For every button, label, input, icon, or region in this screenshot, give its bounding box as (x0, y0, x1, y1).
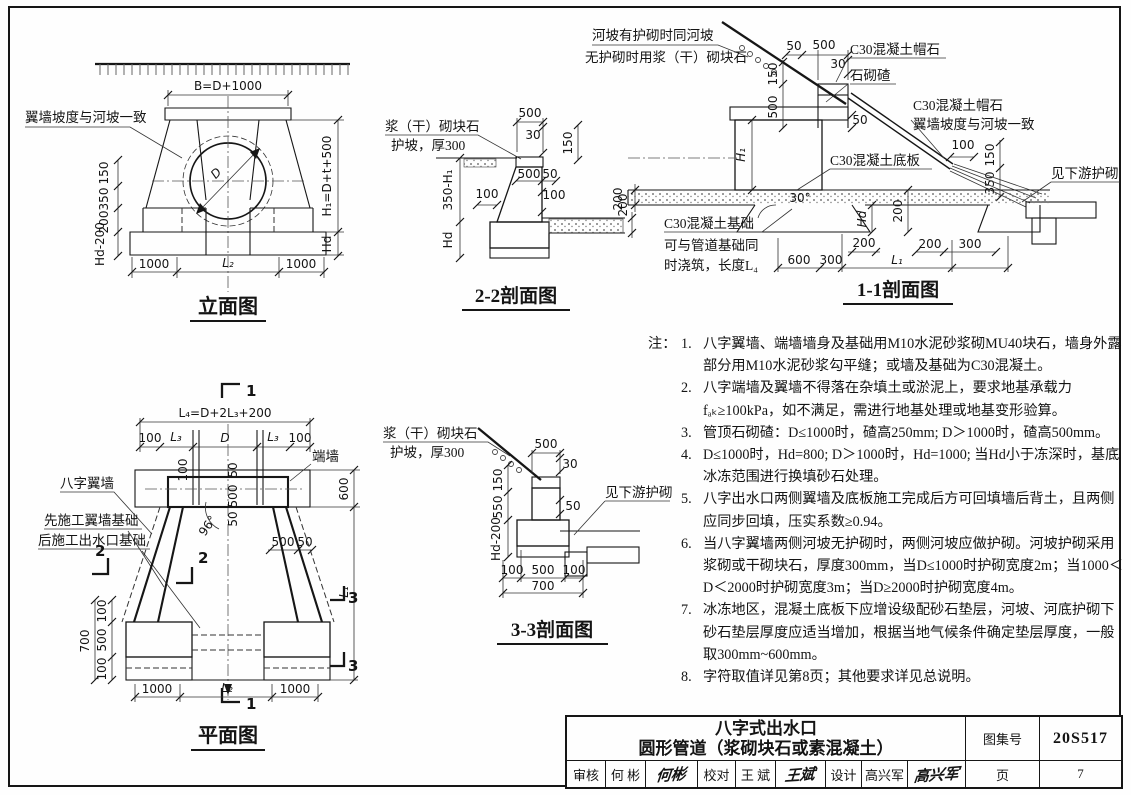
figure-elevation: B=D+1000 D 翼墙坡度与河坡一致 150 350 200 Hd-200 (25, 64, 350, 321)
section-marker-2: 2 (95, 542, 105, 560)
review-signature: 何彬 (645, 760, 697, 787)
dim-label: 30° (789, 191, 810, 205)
proof-signature: 王斌 (775, 760, 825, 787)
dim-label: 100 (289, 431, 312, 445)
atlas-number: 20S517 (1039, 717, 1121, 760)
dim-label: 500 (766, 96, 780, 119)
callout-slope-2: 无护砌时用浆（干）砌块石 (585, 50, 747, 65)
figure-section-1-1: 河坡有护砌时同河坡 无护砌时用浆（干）砌块石 50 500 30 150 500… (585, 22, 1120, 304)
dim-label: 350 (97, 188, 111, 211)
dim-label: 1000 (139, 257, 170, 271)
dim-label: D (208, 165, 224, 181)
design-label: 设计 (825, 760, 861, 787)
dim-label: 50 (297, 535, 312, 549)
dim-label: 30 (562, 457, 577, 471)
dim-label: B=D+1000 (194, 79, 262, 93)
callout-foundation-1: C30混凝土基础 (664, 215, 754, 231)
dim-label: 50 (226, 462, 240, 477)
page-number: 7 (1039, 760, 1121, 787)
note-item: 5. 八字出水口两侧翼墙及底板施工完成后方可回填墙后背土，且两侧应同步回填，压实… (648, 488, 1126, 532)
dim-label: 500 (519, 106, 542, 120)
dim-label: 150 (561, 132, 575, 155)
dim-label: L₂ (221, 681, 233, 695)
note-item: 2. 八字端墙及翼墙不得落在杂填土或淤泥上，要求地基承载力fₐₖ≥100kPa，… (648, 377, 1126, 421)
callout-riprap-2: 护坡，厚300 (390, 445, 464, 460)
callout-capstone-2: C30混凝土帽石 (913, 98, 1003, 113)
dim-label: 1000 (142, 682, 173, 696)
design-name: 高兴军 (861, 760, 907, 787)
section-marker-1: 1 (246, 382, 256, 400)
dim-label: 300 (820, 253, 843, 267)
dim-label: 500 (813, 38, 836, 52)
section-marker-1: 1 (246, 695, 256, 713)
dim-label: 150 (97, 162, 111, 185)
dim-label: 30 (525, 128, 540, 142)
callout-wing-slope: 翼墙坡度与河坡一致 (25, 110, 147, 125)
dim-label: D (220, 431, 229, 445)
callout-riprap-2: 护坡，厚300 (391, 138, 465, 153)
dim-label: 100 (563, 563, 586, 577)
dim-label: 350-H₁ (441, 169, 455, 210)
proof-name: 王 斌 (735, 760, 775, 787)
dim-label: 700 (532, 579, 555, 593)
dim-label: 100 (95, 658, 109, 681)
dim-label: 50 (542, 167, 557, 181)
dim-label: Hd (855, 210, 869, 227)
dim-label: L₁ (891, 253, 903, 267)
callout-slope-1: 河坡有护砌时同河坡 (592, 28, 714, 43)
callout-wing-slope: 翼墙坡度与河坡一致 (913, 117, 1035, 132)
dim-label: H₁=D+t+500 (320, 136, 334, 217)
dim-label: 500 (95, 629, 109, 652)
dim-label: 150 (491, 469, 505, 492)
dim-label: 30 (830, 57, 845, 71)
dim-label: 1000 (286, 257, 317, 271)
figure-title-section33: 3-3剖面图 (511, 618, 593, 641)
callout-downstream: 见下游护砌 (1051, 166, 1119, 181)
callout-endwall: 端墙 (312, 449, 339, 464)
dim-label: 100 (95, 600, 109, 623)
note-item: 8. 字符取值详见第8页；其他要求详见总说明。 (648, 666, 1126, 688)
drawing-title: 八字式出水口 圆形管道（浆砌块石或素混凝土） (567, 717, 965, 760)
figure-plan: 1 L₄=D+2L₃+200 100 L₃ D L₃ 100 100 50 50… (38, 382, 360, 750)
dim-label: Hd (441, 232, 455, 249)
callout-capstone-1: C30混凝土帽石 (850, 42, 940, 57)
dim-label: 500 (226, 485, 240, 508)
atlas-number-label: 图集号 (965, 717, 1039, 760)
callout-build-first: 先施工翼墙基础 (44, 512, 139, 528)
section-marker-3: 3 (348, 657, 358, 675)
dim-label: 100 (476, 187, 499, 201)
dim-label: 200 (611, 188, 625, 211)
dim-label: 100 (501, 563, 524, 577)
callout-foundation-2: 可与管道基础同 (664, 237, 759, 253)
note-item: 7. 冰冻地区，混凝土底板下应增设级配砂石垫层，河坡、河底护砌下砂石垫层厚度应适… (648, 599, 1126, 666)
note-item: 4. D≤1000时，Hd=800; D＞1000时，Hd=1000; 当Hd小… (648, 444, 1126, 488)
dim-label: L₄=D+2L₃+200 (179, 406, 272, 420)
dim-label: 150 (766, 63, 780, 86)
dim-label: 100 (952, 138, 975, 152)
callout-foundation-3: 时浇筑，长度L₄ (664, 258, 758, 273)
figure-title-section11: 1-1剖面图 (857, 278, 939, 301)
proof-label: 校对 (697, 760, 735, 787)
dim-label: 96° (196, 513, 220, 538)
dim-label: 600 (788, 253, 811, 267)
dim-label: 700 (78, 630, 92, 653)
note-item: 注： 1. 八字翼墙、端墙墙身及基础用M10水泥砂浆砌MU40块石，墙身外露部分… (648, 333, 1126, 377)
design-signature: 高兴军 (907, 760, 965, 787)
dim-label: 200 (853, 236, 876, 250)
figure-title-section22: 2-2剖面图 (475, 284, 557, 307)
dim-label: 500 (518, 167, 541, 181)
ground-hatch (95, 64, 350, 75)
callout-riprap: 浆（干）砌块石 (383, 426, 478, 441)
dim-label: 1000 (280, 682, 311, 696)
figure-section-3-3: 浆（干）砌块石 护坡，厚300 500 30 50 (383, 426, 673, 644)
notes-block: 注： 1. 八字翼墙、端墙墙身及基础用M10水泥砂浆砌MU40块石，墙身外露部分… (648, 333, 1126, 688)
figure-title-plan: 平面图 (198, 724, 258, 747)
page-label: 页 (965, 760, 1039, 787)
dim-label: 500 (532, 563, 555, 577)
dim-label: 550 (491, 496, 505, 519)
dim-label: 200 (891, 200, 905, 223)
dim-label: 100 (139, 431, 162, 445)
dim-label: 100 (176, 459, 190, 482)
section-marker-3: 3 (348, 589, 358, 607)
note-item: 3. 管顶石砌碴：D≤1000时，碴高250mm; D＞1000时，碴高500m… (648, 422, 1126, 444)
dim-label: 300 (959, 237, 982, 251)
review-name: 何 彬 (605, 760, 645, 787)
dim-label: Hd-200 (489, 517, 503, 561)
dim-label: L₂ (222, 256, 234, 270)
dim-label: 100 (543, 188, 566, 202)
review-label: 审核 (567, 760, 605, 787)
dim-label: 600 (337, 478, 351, 501)
title-block: 八字式出水口 圆形管道（浆砌块石或素混凝土） 图集号 20S517 审核 何 彬… (565, 715, 1123, 789)
callout-riprap: 浆（干）砌块石 (385, 119, 480, 134)
drawing-sheet: B=D+1000 D 翼墙坡度与河坡一致 150 350 200 Hd-200 (0, 0, 1131, 795)
dim-label: L₃ (267, 430, 279, 444)
dim-label: 500 (535, 437, 558, 451)
dim-label: 200 (919, 237, 942, 251)
callout-wingwall: 八字翼墙 (60, 476, 114, 491)
dim-label: Hd (320, 236, 334, 253)
notes-prefix: 注： (648, 333, 681, 377)
dim-label: L₃ (170, 430, 182, 444)
callout-stone-zha: 石砌碴 (850, 68, 891, 83)
dim-label: 50 (226, 511, 240, 526)
dim-label: 50 (786, 39, 801, 53)
dim-label: 50 (565, 499, 580, 513)
figure-title-elevation: 立面图 (198, 294, 258, 318)
dim-label: Hd-200 (93, 222, 107, 266)
dim-label: 150 (983, 144, 997, 167)
callout-slab: C30混凝土底板 (830, 153, 921, 168)
dim-label: 500 (272, 535, 295, 549)
dim-label: H₁ (734, 148, 748, 162)
note-item: 6. 当八字翼墙两侧河坡无护砌时，两侧河坡应做护砌。河坡护砌采用浆砌或干砌块石，… (648, 533, 1126, 600)
figure-section-2-2: 浆（干）砌块石 护坡，厚300 500 30 150 500 50 100 10… (385, 106, 636, 310)
section-marker-2: 2 (198, 549, 208, 567)
